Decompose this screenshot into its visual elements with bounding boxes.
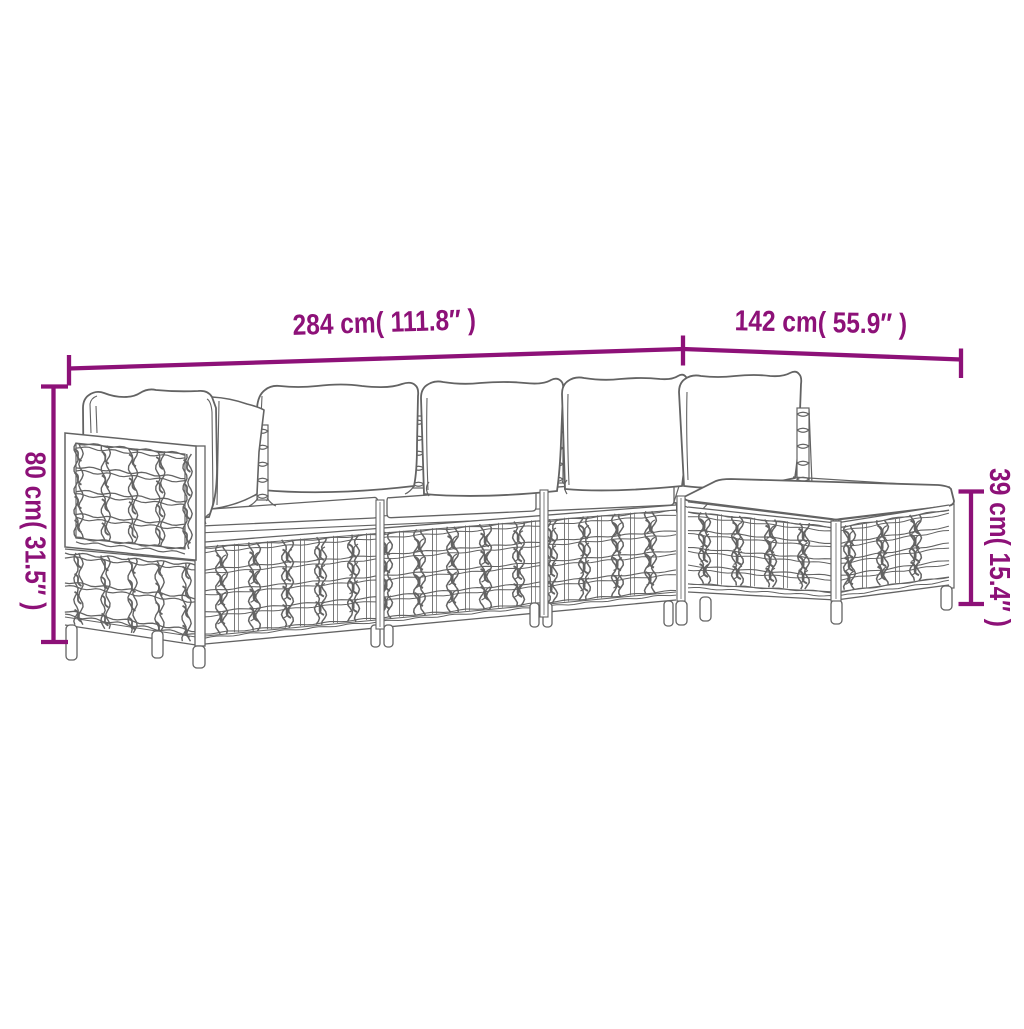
svg-text:284 cm( 111.8″ ): 284 cm( 111.8″ ) xyxy=(292,303,476,341)
svg-text:142 cm( 55.9″ ): 142 cm( 55.9″ ) xyxy=(734,304,907,340)
svg-text:80 cm( 31.5″ ): 80 cm( 31.5″ ) xyxy=(19,452,51,611)
svg-text:39 cm( 15.4″ ): 39 cm( 15.4″ ) xyxy=(984,468,1016,627)
